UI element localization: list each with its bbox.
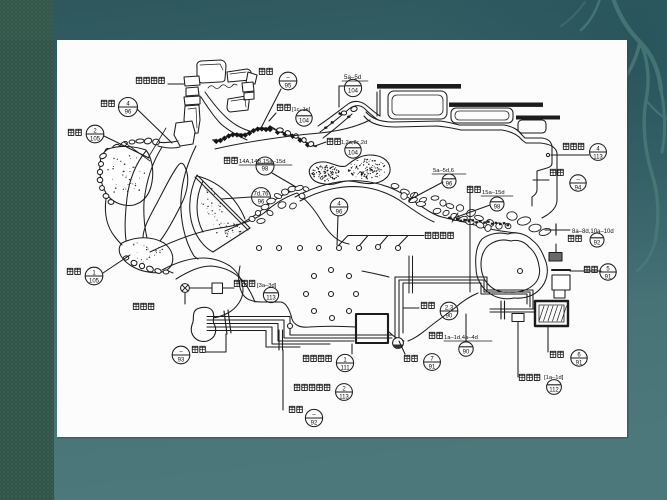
svg-text:91: 91 — [605, 274, 612, 280]
svg-text:94: 94 — [575, 185, 582, 191]
svg-text:91: 91 — [576, 360, 583, 366]
svg-text:2,3: 2,3 — [445, 305, 454, 311]
svg-text:7d,76: 7d,76 — [253, 191, 269, 197]
svg-text:96: 96 — [336, 209, 343, 215]
svg-text:93: 93 — [178, 357, 185, 363]
svg-text:104: 104 — [348, 151, 359, 157]
svg-text:112: 112 — [549, 388, 559, 394]
svg-text:113: 113 — [339, 394, 349, 400]
svg-text:96: 96 — [125, 109, 132, 115]
svg-text:90: 90 — [463, 350, 470, 356]
svg-text:15a–15d: 15a–15d — [482, 190, 505, 196]
svg-text:104: 104 — [299, 119, 310, 125]
svg-text:95: 95 — [285, 83, 292, 89]
svg-text:92: 92 — [311, 420, 318, 426]
svg-text:5a–5d,6: 5a–5d,6 — [433, 168, 454, 174]
svg-text:5a–5d: 5a–5d — [344, 74, 362, 81]
svg-text:96: 96 — [446, 182, 453, 188]
svg-text:104: 104 — [348, 89, 359, 95]
svg-text:105: 105 — [90, 136, 101, 142]
svg-text:90: 90 — [446, 313, 453, 319]
svg-text:1,2a,2c,2d: 1,2a,2c,2d — [341, 140, 367, 146]
svg-text:113: 113 — [593, 154, 603, 160]
svg-text:91: 91 — [429, 364, 436, 370]
svg-text:113: 113 — [266, 296, 276, 302]
svg-text:111: 111 — [340, 365, 350, 371]
svg-text:1a–1d,4a–4d: 1a–1d,4a–4d — [444, 335, 478, 341]
svg-text:92: 92 — [594, 241, 601, 247]
svg-text:105: 105 — [89, 278, 100, 284]
svg-text:98: 98 — [494, 205, 501, 211]
svg-text:98: 98 — [262, 167, 269, 173]
svg-text:14A,14B,15a–15d: 14A,14B,15a–15d — [239, 159, 285, 165]
